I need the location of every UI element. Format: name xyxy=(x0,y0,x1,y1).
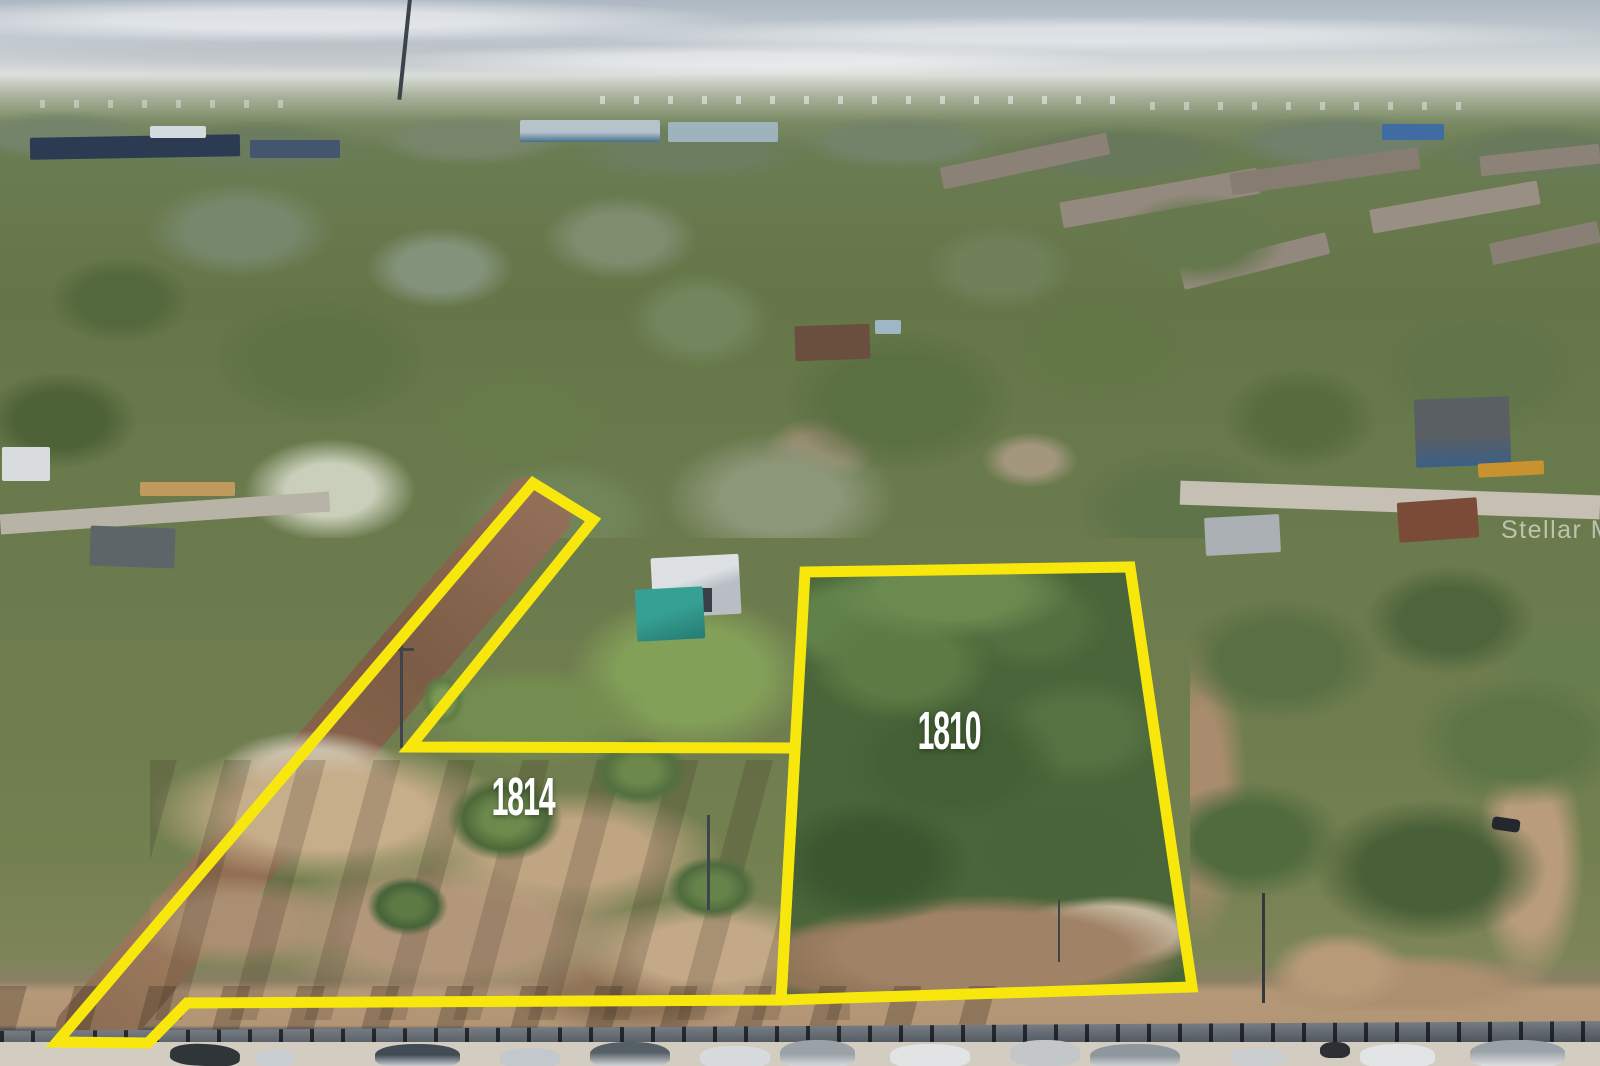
parcel-outline-1810 xyxy=(781,567,1192,1000)
parcel-outline-overlay xyxy=(0,0,1600,1066)
aerial-photo: 1814 1810 Stellar MLS xyxy=(0,0,1600,1066)
mls-watermark: Stellar MLS xyxy=(1501,516,1600,545)
parcel-outline-1814 xyxy=(57,483,795,1043)
parcel-label-1810: 1810 xyxy=(918,704,981,758)
parcel-label-1814: 1814 xyxy=(492,770,555,824)
